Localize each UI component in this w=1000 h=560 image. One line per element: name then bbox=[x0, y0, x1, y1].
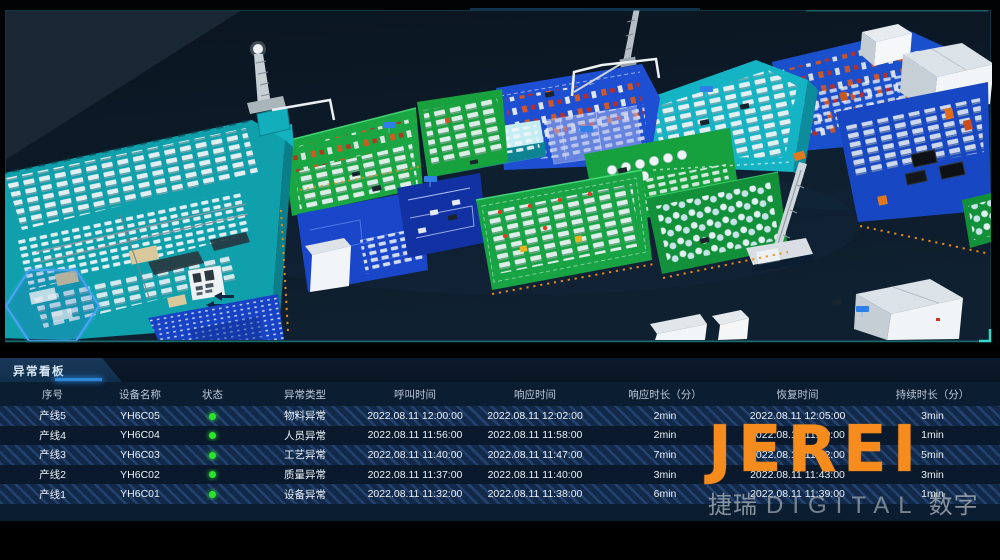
plate-green-upper bbox=[417, 89, 508, 178]
cell-device-name: YH6C04 bbox=[105, 429, 175, 441]
cell-call-time: 2022.08.11 11:56:00 bbox=[360, 429, 470, 441]
cell-call-time: 2022.08.11 11:32:00 bbox=[360, 488, 470, 500]
cell-recovery-time: 2022.08.11 12:05:00 bbox=[730, 410, 865, 422]
cell-response-duration: 2min bbox=[600, 429, 730, 441]
cell-status bbox=[175, 449, 250, 461]
cell-response-duration: 3min bbox=[600, 469, 730, 481]
col-header-response-time: 响应时间 bbox=[470, 387, 600, 402]
cell-anomaly-type: 质量异常 bbox=[250, 467, 360, 482]
status-dot bbox=[209, 452, 216, 459]
cell-anomaly-type: 设备异常 bbox=[250, 487, 360, 502]
cell-recovery-time: 2022.08.11 11:39:00 bbox=[730, 488, 865, 500]
hexagon-marker[interactable] bbox=[6, 270, 99, 341]
cell-response-time: 2022.08.11 11:47:00 bbox=[470, 449, 600, 461]
cell-line-no: 产线5 bbox=[0, 408, 105, 423]
cell-duration: 3min bbox=[865, 469, 1000, 481]
cell-response-duration: 2min bbox=[600, 410, 730, 422]
cell-status bbox=[175, 410, 250, 422]
cell-duration: 1min bbox=[865, 429, 1000, 441]
col-header-response-duration: 响应时长（分） bbox=[600, 387, 730, 402]
cell-response-time: 2022.08.11 12:02:00 bbox=[470, 410, 600, 422]
cell-line-no: 产线1 bbox=[0, 487, 105, 502]
status-dot bbox=[209, 471, 216, 478]
cell-call-time: 2022.08.11 11:40:00 bbox=[360, 449, 470, 461]
cell-response-duration: 6min bbox=[600, 488, 730, 500]
cell-response-time: 2022.08.11 11:38:00 bbox=[470, 488, 600, 500]
cell-status bbox=[175, 469, 250, 481]
cell-anomaly-type: 人员异常 bbox=[250, 428, 360, 443]
table-header-row: 序号 设备名称 状态 异常类型 呼叫时间 响应时间 响应时长（分） 恢复时间 持… bbox=[0, 382, 1000, 406]
cell-response-time: 2022.08.11 11:40:00 bbox=[470, 469, 600, 481]
table-row[interactable]: 产线1 YH6C01 设备异常 2022.08.11 11:32:00 2022… bbox=[0, 484, 1000, 504]
factory-3d-scene bbox=[0, 0, 1000, 346]
col-header-duration: 持续时长（分） bbox=[865, 387, 1000, 402]
col-header-line-no: 序号 bbox=[0, 387, 105, 402]
col-header-anomaly-type: 异常类型 bbox=[250, 387, 360, 402]
cell-duration: 5min bbox=[865, 449, 1000, 461]
cell-device-name: YH6C01 bbox=[105, 488, 175, 500]
cell-device-name: YH6C03 bbox=[105, 449, 175, 461]
panel-header: 异常看板 bbox=[0, 358, 1000, 382]
col-header-status: 状态 bbox=[175, 387, 250, 402]
cell-recovery-time: 2022.08.11 11:52:00 bbox=[730, 449, 865, 461]
cell-line-no: 产线2 bbox=[0, 467, 105, 482]
cell-call-time: 2022.08.11 12:00:00 bbox=[360, 410, 470, 422]
table-row[interactable]: 产线3 YH6C03 工艺异常 2022.08.11 11:40:00 2022… bbox=[0, 445, 1000, 465]
anomaly-panel: 异常看板 序号 设备名称 状态 异常类型 呼叫时间 响应时间 响应时长（分） 恢… bbox=[0, 358, 1000, 521]
bottom-black-bar bbox=[0, 343, 1000, 346]
status-dot bbox=[209, 491, 216, 498]
table-body: 产线5 YH6C05 物料异常 2022.08.11 12:00:00 2022… bbox=[0, 406, 1000, 504]
panel-title: 异常看板 bbox=[13, 363, 65, 379]
table-row[interactable]: 产线2 YH6C02 质量异常 2022.08.11 11:37:00 2022… bbox=[0, 465, 1000, 485]
col-header-recovery-time: 恢复时间 bbox=[730, 387, 865, 402]
title-underline bbox=[55, 378, 102, 381]
cell-recovery-time: 2022.08.11 11:59:00 bbox=[730, 429, 865, 441]
right-black-bar bbox=[992, 0, 1000, 346]
left-black-bar bbox=[0, 0, 5, 346]
table-row[interactable]: 产线5 YH6C05 物料异常 2022.08.11 12:00:00 2022… bbox=[0, 406, 1000, 426]
cell-status bbox=[175, 429, 250, 441]
cell-recovery-time: 2022.08.11 11:43:00 bbox=[730, 469, 865, 481]
cell-anomaly-type: 物料异常 bbox=[250, 408, 360, 423]
status-dot bbox=[209, 413, 216, 420]
status-dot bbox=[209, 432, 216, 439]
col-header-call-time: 呼叫时间 bbox=[360, 387, 470, 402]
cell-anomaly-type: 工艺异常 bbox=[250, 447, 360, 462]
cell-duration: 1min bbox=[865, 488, 1000, 500]
table-row[interactable]: 产线4 YH6C04 人员异常 2022.08.11 11:56:00 2022… bbox=[0, 426, 1000, 446]
cell-device-name: YH6C02 bbox=[105, 469, 175, 481]
factory-3d-viewport[interactable] bbox=[0, 0, 1000, 346]
cell-status bbox=[175, 488, 250, 500]
cell-response-duration: 7min bbox=[600, 449, 730, 461]
cell-response-time: 2022.08.11 11:58:00 bbox=[470, 429, 600, 441]
cell-duration: 3min bbox=[865, 410, 1000, 422]
cell-line-no: 产线3 bbox=[0, 447, 105, 462]
top-glow bbox=[470, 8, 700, 11]
cell-call-time: 2022.08.11 11:37:00 bbox=[360, 469, 470, 481]
cell-line-no: 产线4 bbox=[0, 428, 105, 443]
col-header-device-name: 设备名称 bbox=[105, 387, 175, 402]
cell-device-name: YH6C05 bbox=[105, 410, 175, 422]
